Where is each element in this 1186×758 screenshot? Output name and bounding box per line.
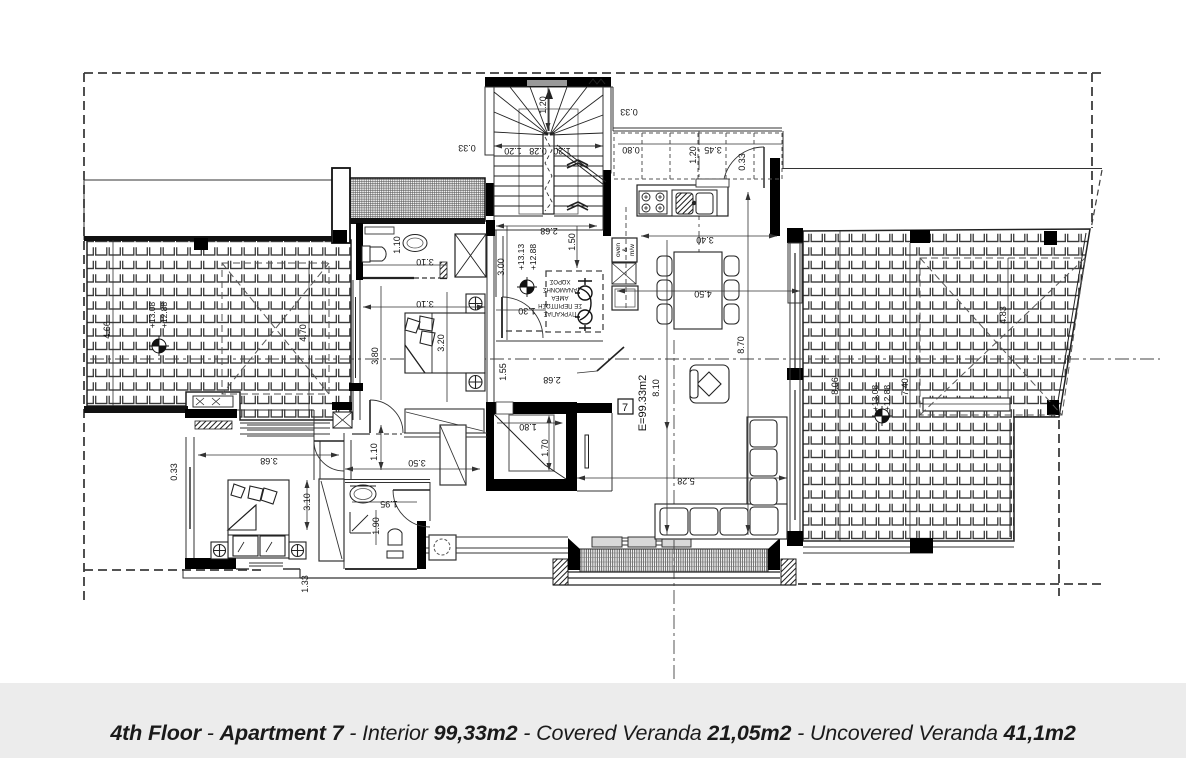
svg-text:+13.08: +13.08 xyxy=(147,302,157,329)
svg-text:1.55: 1.55 xyxy=(498,363,508,381)
svg-text:ΣΕ ΠΕΡΙΠΤΩΣΗ: ΣΕ ΠΕΡΙΠΤΩΣΗ xyxy=(538,302,582,308)
svg-text:0.33: 0.33 xyxy=(737,153,747,171)
svg-text:1.80: 1.80 xyxy=(519,422,537,432)
svg-text:1.20: 1.20 xyxy=(553,146,571,156)
svg-text:4.70: 4.70 xyxy=(298,324,308,342)
svg-text:1.95: 1.95 xyxy=(380,499,398,509)
svg-text:2.68: 2.68 xyxy=(543,375,561,385)
svg-text:3.68: 3.68 xyxy=(260,456,278,466)
svg-text:+13.08: +13.08 xyxy=(870,385,880,412)
svg-text:8.70: 8.70 xyxy=(736,336,746,354)
svg-text:+12.88: +12.88 xyxy=(882,385,892,412)
svg-text:5.28: 5.28 xyxy=(677,476,695,486)
svg-text:1.33: 1.33 xyxy=(300,575,310,593)
svg-text:3.20: 3.20 xyxy=(436,334,446,352)
svg-text:1.90: 1.90 xyxy=(371,517,381,535)
svg-text:oven: oven xyxy=(615,243,622,257)
svg-text:7: 7 xyxy=(622,402,628,414)
svg-text:3.40: 3.40 xyxy=(696,235,714,245)
svg-text:1.30: 1.30 xyxy=(518,306,536,316)
svg-text:1.20: 1.20 xyxy=(538,96,548,114)
svg-text:8.10: 8.10 xyxy=(651,379,661,397)
svg-text:1.70: 1.70 xyxy=(540,439,550,457)
svg-text:2.68: 2.68 xyxy=(540,226,558,236)
svg-text:m/w: m/w xyxy=(629,244,636,256)
svg-text:3.50: 3.50 xyxy=(408,458,426,468)
svg-text:3.10: 3.10 xyxy=(416,257,434,267)
svg-text:1.50: 1.50 xyxy=(567,233,577,251)
svg-text:4.83: 4.83 xyxy=(998,306,1008,324)
svg-text:1.10: 1.10 xyxy=(369,443,379,461)
svg-text:3.10: 3.10 xyxy=(416,299,434,309)
svg-text:+12.88: +12.88 xyxy=(528,244,538,271)
svg-text:3.10: 3.10 xyxy=(302,493,312,511)
svg-text:8.06: 8.06 xyxy=(830,377,840,395)
svg-text:1.20: 1.20 xyxy=(504,146,522,156)
svg-text:3.80: 3.80 xyxy=(370,347,380,365)
svg-text:&: & xyxy=(622,247,629,252)
svg-text:ΑΝΑΜΟΝΗΣ: ΑΝΑΜΟΝΗΣ xyxy=(543,286,578,292)
svg-text:4.66: 4.66 xyxy=(102,321,112,339)
svg-text:0.80: 0.80 xyxy=(622,145,640,155)
svg-text:ΠΥΡΚΑΓΙΑΣ: ΠΥΡΚΑΓΙΑΣ xyxy=(543,310,576,316)
svg-text:+13.13: +13.13 xyxy=(516,244,526,271)
svg-text:0.33: 0.33 xyxy=(458,143,476,153)
svg-text:7.40: 7.40 xyxy=(900,378,910,396)
svg-text:4.50: 4.50 xyxy=(694,289,712,299)
svg-text:ΑΜΕΑ: ΑΜΕΑ xyxy=(551,294,568,300)
svg-text:3.45: 3.45 xyxy=(704,145,722,155)
svg-text:3.00: 3.00 xyxy=(496,258,506,276)
svg-text:ΧΩΡΟΣ: ΧΩΡΟΣ xyxy=(549,278,570,284)
svg-text:+12.88: +12.88 xyxy=(159,302,169,329)
svg-text:1.20: 1.20 xyxy=(688,146,698,164)
svg-text:E=99.33m2: E=99.33m2 xyxy=(637,375,649,432)
svg-text:0.28: 0.28 xyxy=(529,146,547,156)
svg-text:0.33: 0.33 xyxy=(169,463,179,481)
svg-text:0.33: 0.33 xyxy=(620,107,638,117)
svg-text:1.10: 1.10 xyxy=(392,236,402,254)
